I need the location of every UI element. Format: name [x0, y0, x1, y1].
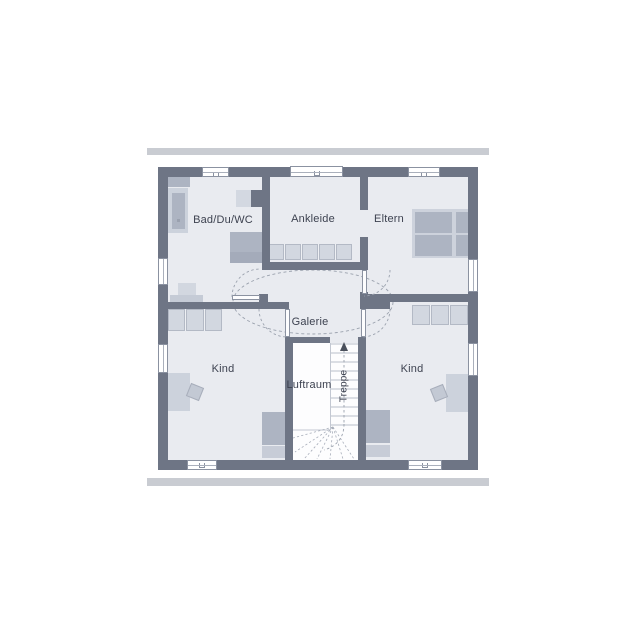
floor-plan: Bad/Du/WC Ankleide Eltern Galerie Kind K…: [0, 0, 636, 636]
eltern-pillow-top: [456, 212, 468, 233]
room-label-kind-right: Kind: [401, 363, 424, 375]
wall-ankleide-bottom: [262, 262, 368, 270]
ankleide-wardrobe: [268, 244, 352, 260]
wall-bad-ankleide: [262, 177, 270, 270]
roof-edge-top: [147, 148, 489, 155]
exterior-wall-right: [468, 167, 478, 470]
kind-right-desk: [446, 374, 468, 412]
room-label-treppe: Treppe: [339, 370, 350, 403]
bathtub-drain: [177, 219, 180, 222]
window-handle-icon: [213, 172, 219, 177]
kind-left-bed: [262, 412, 285, 445]
room-label-luftraum: Luftraum: [286, 379, 331, 391]
kind-right-pillow: [366, 445, 390, 457]
radiator-box: [178, 283, 196, 295]
room-label-galerie: Galerie: [292, 316, 329, 328]
wall-eltern-kind-right: [360, 294, 468, 302]
window-handle-icon: [314, 171, 320, 176]
window-kind-right-side: [468, 343, 478, 376]
window-kind-right-bottom: [408, 460, 442, 470]
kind-left-pillow: [262, 446, 285, 458]
kind-right-bed: [366, 410, 390, 443]
window-ankleide-top: [290, 166, 343, 177]
room-label-kind-left: Kind: [212, 363, 235, 375]
window-handle-icon: [199, 463, 205, 468]
wall-eltern-door-jamb: [360, 292, 368, 309]
bath-shelf: [168, 177, 190, 187]
wall-ankleide-eltern-upper: [360, 177, 368, 210]
bad-door-leaf: [232, 295, 260, 300]
window-eltern-top: [408, 167, 440, 177]
roof-edge-bottom: [147, 478, 489, 486]
eltern-mattress-bottom: [415, 235, 452, 256]
room-label-eltern: Eltern: [374, 213, 404, 225]
wall-stairwell-left: [285, 337, 293, 460]
washbasin: [236, 190, 251, 207]
wall-bad-kind-left: [168, 302, 289, 309]
window-kind-left-bottom: [187, 460, 217, 470]
floor-plan-page: { "plan": { "rooms": [ {"id": "bad-du-wc…: [0, 0, 636, 636]
window-bad-top: [202, 167, 229, 177]
room-label-bad: Bad/Du/WC: [193, 214, 253, 226]
kind-right-door-leaf: [361, 309, 366, 337]
kind-left-door-leaf: [285, 309, 290, 337]
window-handle-icon: [421, 172, 427, 177]
exterior-wall-left: [158, 167, 168, 470]
wall-basin-stub: [251, 190, 262, 207]
window-kind-left-side: [158, 344, 168, 373]
eltern-mattress-top: [415, 212, 452, 233]
wall-stairwell-right: [358, 337, 366, 460]
wall-kind-right-stub: [368, 302, 390, 309]
radiator-bar: [170, 295, 203, 302]
wall-luftraum-top: [285, 337, 330, 343]
wall-bad-door-jamb: [259, 294, 268, 302]
window-handle-icon: [422, 463, 428, 468]
eltern-pillow-bottom: [456, 235, 468, 256]
bathtub-inner: [172, 193, 185, 229]
room-label-ankleide: Ankleide: [291, 213, 335, 225]
kind-left-wardrobe: [168, 309, 222, 331]
window-eltern-right: [468, 259, 478, 292]
window-bad-left: [158, 258, 168, 285]
kind-right-wardrobe: [412, 305, 468, 325]
shower-tray: [230, 252, 262, 263]
eltern-door-leaf: [362, 270, 367, 294]
